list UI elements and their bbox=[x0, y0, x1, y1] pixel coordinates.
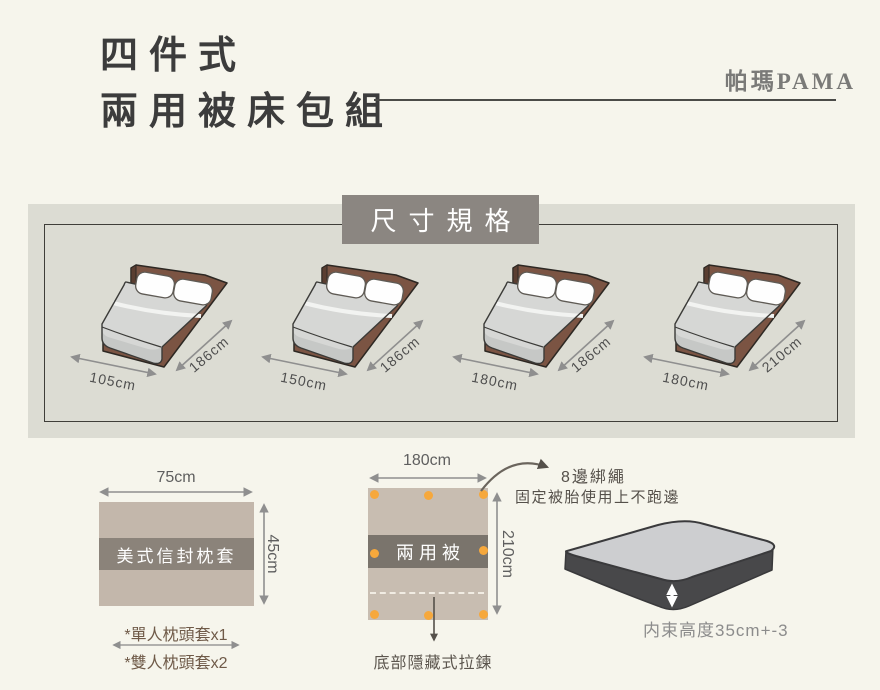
bed-width-label: 180cm bbox=[661, 369, 710, 394]
tie-dot bbox=[370, 549, 379, 558]
pillow-height-label: 45cm bbox=[263, 529, 281, 579]
product-spec-page: 四件式 兩用被床包組 帕瑪PAMA 尺寸規格 105cm 186cm 150cm… bbox=[0, 0, 880, 690]
tie-dot bbox=[479, 610, 488, 619]
bed-figure-queen: 180cm 186cm bbox=[438, 250, 628, 400]
tie-rope-title: 8邊綁繩 bbox=[561, 463, 626, 487]
bed-width-label: 150cm bbox=[279, 369, 328, 394]
page-title-line2: 兩用被床包組 bbox=[100, 93, 394, 131]
pillowcase-name-band: 美式信封枕套 bbox=[99, 538, 254, 570]
bed-figure-single: 105cm 186cm bbox=[56, 250, 246, 400]
spec-panel-title: 尺寸規格 bbox=[342, 195, 539, 244]
pillow-note-double: *雙人枕頭套x2 bbox=[96, 649, 256, 673]
tie-dot bbox=[424, 491, 433, 500]
page-title-line1: 四件式 bbox=[100, 37, 247, 75]
quilt-width-label: 180cm bbox=[377, 452, 477, 470]
pillowcase-diagram: 美式信封枕套 bbox=[99, 502, 254, 606]
quilt-name-band: 兩用被 bbox=[368, 535, 488, 568]
mattress-height-note: 内束高度35cm+-3 bbox=[643, 616, 789, 641]
tie-dot bbox=[479, 546, 488, 555]
bed-length-label: 186cm bbox=[186, 333, 232, 375]
header-divider bbox=[374, 99, 836, 101]
bed-width-label: 105cm bbox=[88, 369, 137, 394]
bed-length-label: 186cm bbox=[568, 333, 614, 375]
mattress-illustration bbox=[555, 510, 795, 620]
tie-dot bbox=[370, 490, 379, 499]
bed-width-label: 180cm bbox=[470, 369, 519, 394]
quilt-height-label: 210cm bbox=[498, 524, 516, 584]
bed-figure-double: 150cm 186cm bbox=[247, 250, 437, 400]
tie-dot bbox=[424, 611, 433, 620]
tie-rope-description: 固定被胎使用上不跑邊 bbox=[515, 486, 680, 507]
quilt-diagram: 兩用被 bbox=[368, 488, 488, 620]
bed-length-label: 186cm bbox=[377, 333, 423, 375]
zipper-dashed-line bbox=[370, 592, 484, 594]
tie-dot bbox=[370, 610, 379, 619]
bed-figure-king: 180cm 210cm bbox=[629, 250, 819, 400]
brand-name: 帕瑪PAMA bbox=[700, 62, 856, 96]
zipper-note: 底部隱藏式拉鍊 bbox=[353, 649, 513, 673]
pillow-width-label: 75cm bbox=[136, 469, 216, 487]
bed-length-label: 210cm bbox=[759, 333, 805, 375]
pillow-note-single: *單人枕頭套x1 bbox=[96, 621, 256, 645]
tie-dot bbox=[479, 490, 488, 499]
